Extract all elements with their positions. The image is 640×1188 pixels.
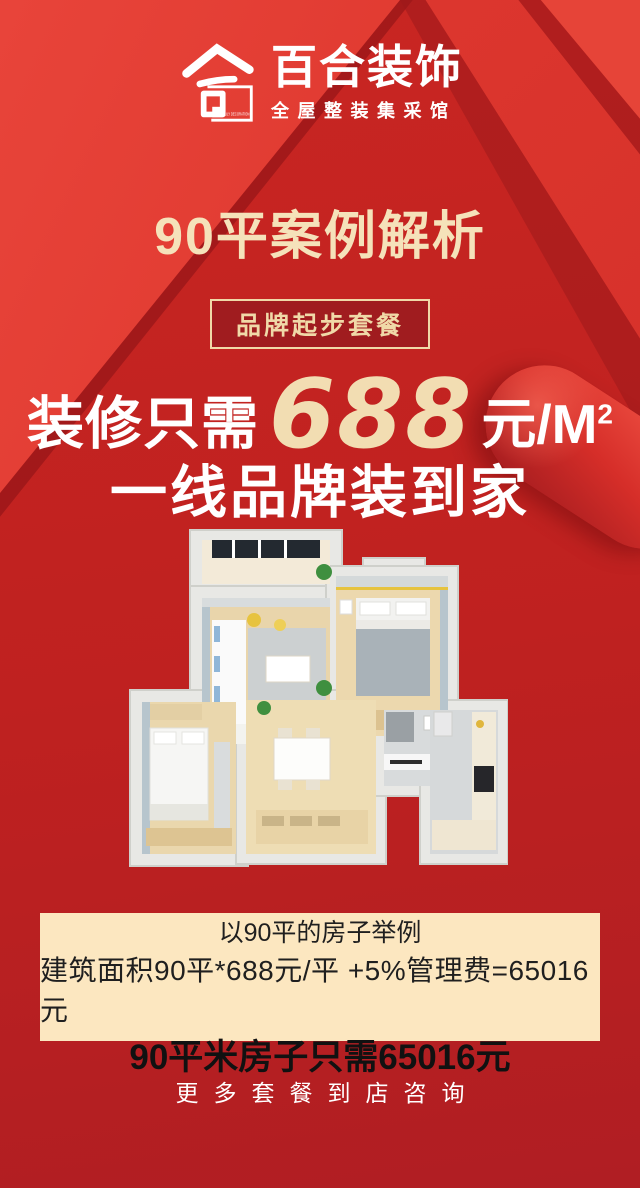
package-badge: 品牌起步套餐 <box>210 299 430 349</box>
example-line-3: 90平米房子只需65016元 <box>129 1029 510 1080</box>
offer-unit-sup: 2 <box>597 399 613 430</box>
brand-name: 百合装饰 <box>271 43 463 91</box>
example-line-2: 建筑面积90平*688元/平 +5%管理费=65016元 <box>40 949 600 1029</box>
kitchen <box>430 710 498 854</box>
footer-cta: 更多套餐到店咨询 <box>0 1074 640 1108</box>
offer-tagline: 一线品牌装到家 <box>0 447 640 529</box>
example-line-1: 以90平的房子举例 <box>219 913 422 949</box>
floorplan-image <box>128 528 508 868</box>
balcony <box>202 540 332 584</box>
bedroom <box>142 702 236 854</box>
example-panel: 以90平的房子举例 建筑面积90平*688元/平 +5%管理费=65016元 9… <box>40 913 600 1041</box>
page-title: 90平案例解析 <box>0 194 640 269</box>
poster: LILY DECORATION 百合装饰 全屋整装集采馆 90平案例解析 品牌起… <box>0 0 640 1188</box>
brand-logo-icon: LILY DECORATION <box>177 40 257 126</box>
brand-logo: LILY DECORATION 百合装饰 全屋整装集采馆 <box>0 40 640 126</box>
package-badge-wrap: 品牌起步套餐 <box>0 299 640 349</box>
offer-unit-text: 元/M <box>481 393 597 455</box>
dining-area <box>246 700 376 854</box>
brand-tagline: 全屋整装集采馆 <box>271 97 457 123</box>
logo-caption: LILY DECORATION <box>225 111 250 117</box>
